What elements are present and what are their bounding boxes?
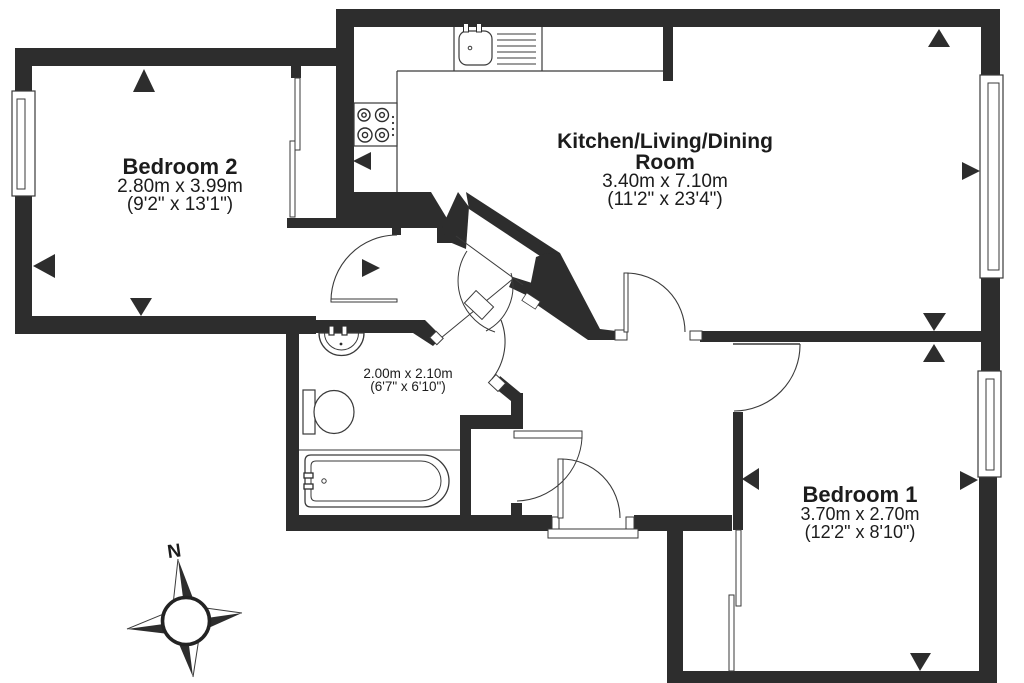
svg-text:(6'7" x 6'10"): (6'7" x 6'10") (370, 379, 446, 394)
svg-text:(11'2" x 23'4"): (11'2" x 23'4") (607, 189, 722, 210)
svg-text:(12'2" x 8'10"): (12'2" x 8'10") (805, 522, 916, 542)
svg-text:N: N (166, 540, 183, 563)
svg-text:3.70m x 2.70m: 3.70m x 2.70m (800, 504, 919, 524)
svg-text:Kitchen/Living/Dining: Kitchen/Living/Dining (557, 130, 773, 153)
svg-text:(9'2" x 13'1"): (9'2" x 13'1") (127, 194, 233, 215)
